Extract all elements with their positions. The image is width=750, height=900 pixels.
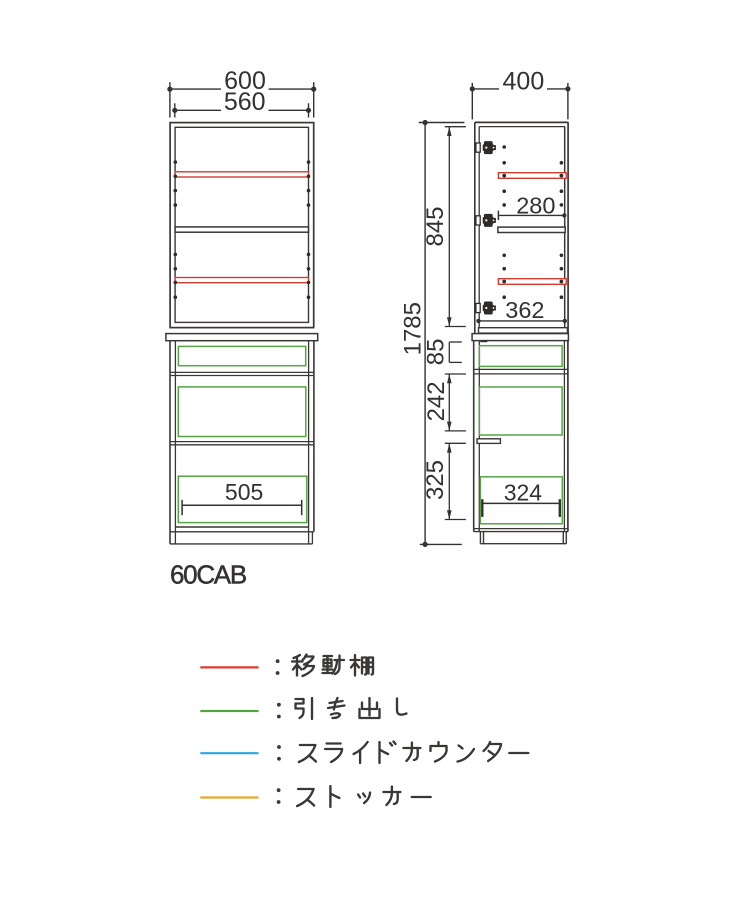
svg-text:560: 560 — [224, 88, 266, 116]
svg-text:845: 845 — [422, 206, 449, 246]
svg-text:324: 324 — [504, 479, 543, 505]
svg-text:85: 85 — [423, 339, 450, 366]
svg-text:505: 505 — [225, 479, 263, 505]
svg-text:280: 280 — [516, 192, 555, 218]
svg-text:400: 400 — [503, 68, 545, 96]
svg-text:242: 242 — [423, 381, 450, 421]
svg-text:362: 362 — [505, 297, 544, 323]
svg-text:60CAB: 60CAB — [170, 559, 246, 589]
svg-text:325: 325 — [422, 460, 449, 500]
